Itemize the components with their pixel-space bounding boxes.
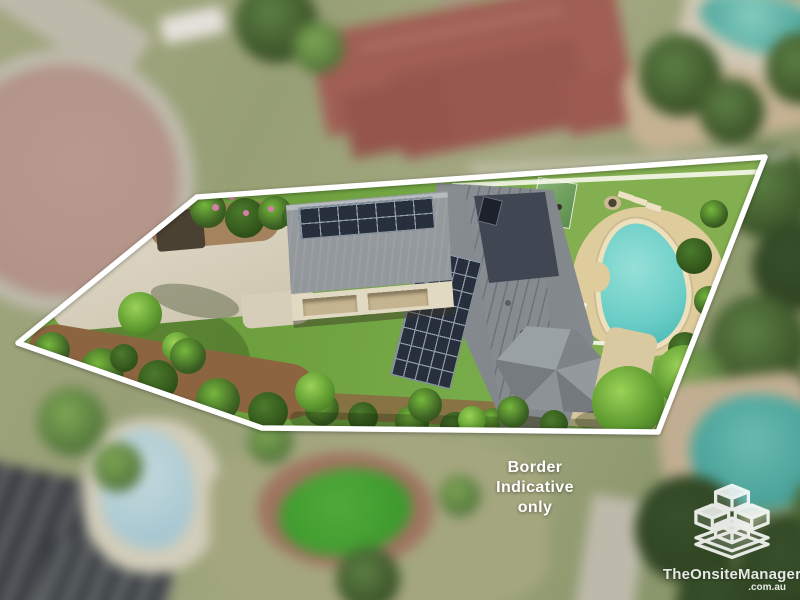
shrub	[110, 344, 138, 372]
border-indicative-line: Indicative	[449, 478, 621, 498]
palm-tree	[408, 388, 442, 422]
hedge	[676, 238, 712, 274]
flower-bush	[268, 206, 274, 212]
palm-tree	[295, 372, 335, 412]
tree	[592, 366, 664, 438]
watermark: TheOnsiteManager .com.au	[648, 482, 800, 593]
tree	[497, 396, 529, 428]
palm-tree	[170, 338, 206, 374]
isometric-cubes-logo	[691, 482, 773, 564]
flower-bush	[212, 204, 219, 211]
palm-tree	[118, 292, 162, 336]
watermark-tld: .com.au	[648, 582, 800, 593]
flower-bush	[229, 194, 235, 200]
border-indicative-label: Border Indicative only	[449, 458, 621, 518]
roof-vent	[505, 300, 511, 306]
border-indicative-line: Border	[449, 458, 621, 478]
flower-bush	[243, 210, 249, 216]
watermark-brand: TheOnsiteManager	[648, 566, 800, 583]
pool-deck	[586, 262, 610, 292]
border-indicative-line: only	[449, 498, 621, 518]
fire-pit	[604, 196, 621, 210]
aerial-property-photo: Border Indicative only TheOnsiteManager …	[0, 0, 800, 600]
palm-tree	[458, 406, 486, 434]
hedge	[700, 200, 728, 228]
